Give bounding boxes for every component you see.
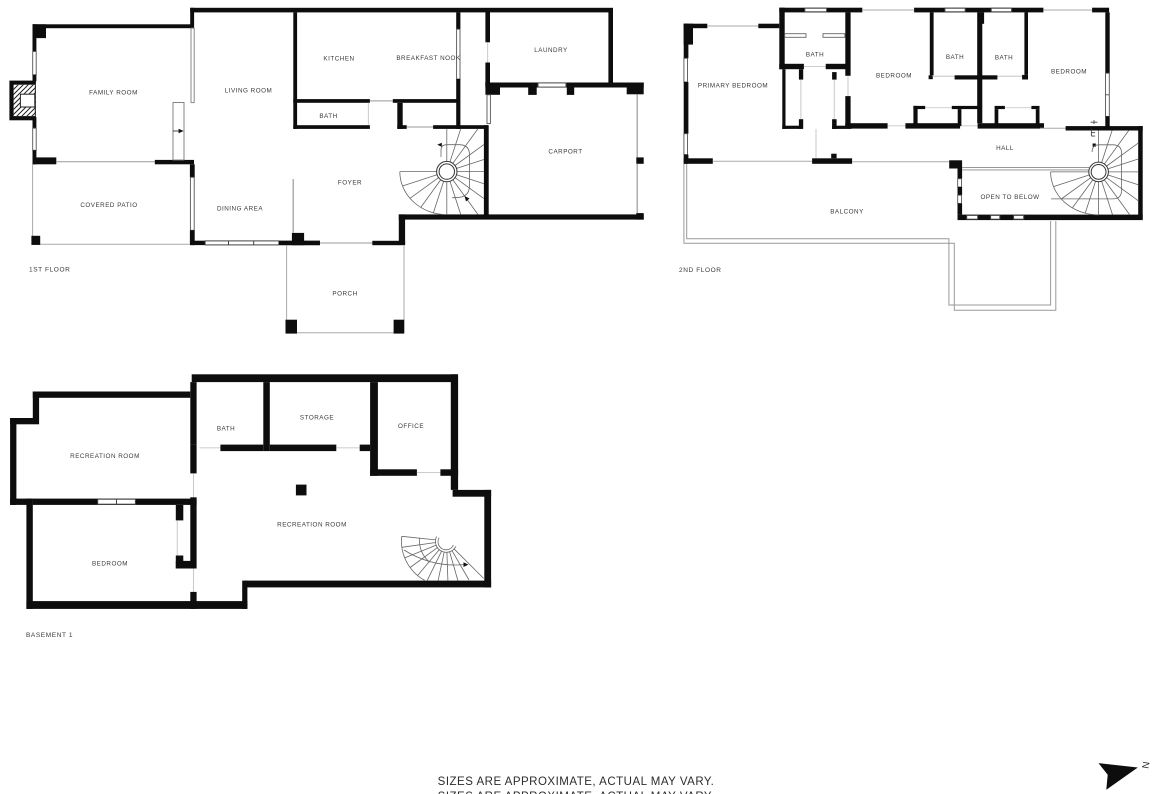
svg-text:FOYER: FOYER xyxy=(338,180,362,187)
svg-text:BATH: BATH xyxy=(806,52,824,59)
svg-text:BREAKFAST NOOK: BREAKFAST NOOK xyxy=(396,55,461,62)
svg-text:KITCHEN: KITCHEN xyxy=(323,56,354,63)
svg-text:STORAGE: STORAGE xyxy=(300,415,334,422)
svg-text:HALL: HALL xyxy=(996,145,1014,152)
svg-text:OFFICE: OFFICE xyxy=(398,423,424,430)
svg-text:COVERED PATIO: COVERED PATIO xyxy=(80,202,137,209)
svg-text:OPEN TO BELOW: OPEN TO BELOW xyxy=(980,194,1039,201)
svg-text:FAMILY ROOM: FAMILY ROOM xyxy=(89,90,138,97)
svg-text:BATH: BATH xyxy=(995,55,1013,62)
svg-text:DINING AREA: DINING AREA xyxy=(217,206,263,213)
svg-text:BEDROOM: BEDROOM xyxy=(92,561,128,568)
svg-text:RECREATION ROOM: RECREATION ROOM xyxy=(70,453,140,460)
svg-text:BATH: BATH xyxy=(946,54,964,61)
svg-text:LAUNDRY: LAUNDRY xyxy=(534,47,568,54)
svg-text:CARPORT: CARPORT xyxy=(548,149,582,156)
svg-text:BATH: BATH xyxy=(217,426,235,433)
svg-text:LIVING ROOM: LIVING ROOM xyxy=(225,88,272,95)
svg-text:BALCONY: BALCONY xyxy=(830,209,864,216)
svg-text:BEDROOM: BEDROOM xyxy=(876,73,912,80)
svg-text:SIZES ARE APPROXIMATE, ACTUAL: SIZES ARE APPROXIMATE, ACTUAL MAY VARY. xyxy=(438,776,715,788)
svg-text:BEDROOM: BEDROOM xyxy=(1051,69,1087,76)
svg-text:BASEMENT 1: BASEMENT 1 xyxy=(26,632,73,639)
svg-text:BATH: BATH xyxy=(319,113,337,120)
svg-text:PRIMARY BEDROOM: PRIMARY BEDROOM xyxy=(698,83,768,90)
svg-text:PORCH: PORCH xyxy=(332,291,357,298)
svg-text:RECREATION ROOM: RECREATION ROOM xyxy=(277,522,347,529)
svg-text:2ND FLOOR: 2ND FLOOR xyxy=(679,267,722,274)
svg-text:1ST FLOOR: 1ST FLOOR xyxy=(29,267,70,274)
